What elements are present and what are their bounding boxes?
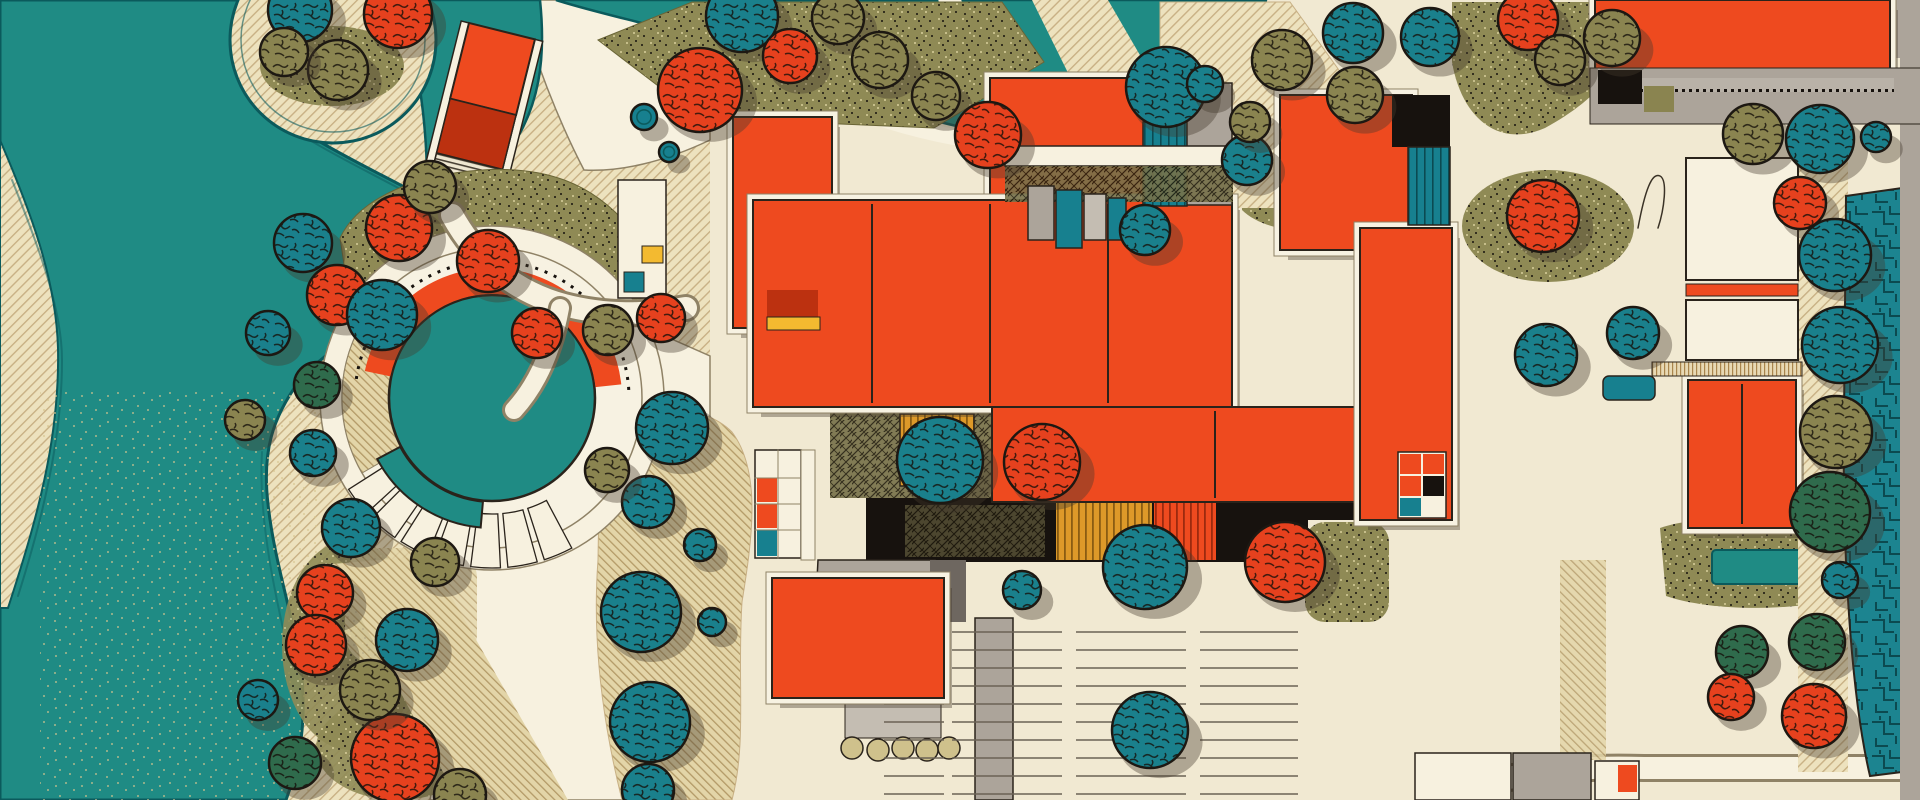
building-east-residence (1682, 374, 1804, 538)
tree-canopy-texture (1508, 181, 1578, 251)
tree-canopy-texture (1104, 526, 1186, 608)
building-east-court-b (1686, 300, 1798, 360)
tree-canopy-texture (323, 500, 379, 556)
building-detail (1603, 376, 1655, 400)
building-detail (642, 246, 663, 263)
tree-canopy-texture (637, 393, 707, 463)
building-detail (1513, 753, 1591, 800)
tree-canopy-texture (1790, 615, 1844, 669)
tree-canopy-texture (1783, 685, 1845, 747)
building-detail (1642, 78, 1894, 92)
tree-canopy-texture (611, 683, 689, 761)
tree-canopy-texture (956, 103, 1020, 167)
tree-canopy-texture (1113, 693, 1187, 767)
building-detail (767, 317, 820, 330)
courtyard-and-parking-shape (841, 737, 863, 759)
tree-canopy-texture (764, 30, 816, 82)
tree-canopy-texture (270, 738, 320, 788)
tree-canopy-texture (898, 418, 982, 502)
building-detail (1028, 186, 1054, 240)
tree-canopy-texture (1801, 397, 1871, 467)
tree-canopy-texture (1787, 106, 1853, 172)
tree-canopy-texture (1402, 9, 1458, 65)
courtyard-and-parking-shape (905, 505, 1045, 557)
building-detail (624, 272, 644, 292)
tree-canopy-texture (1724, 105, 1782, 163)
building-south-lodge (766, 572, 952, 708)
building-detail (757, 504, 777, 528)
building-detail (1400, 498, 1421, 516)
building-detail (1400, 454, 1421, 474)
tree-canopy-texture (1717, 627, 1767, 677)
tree-canopy-texture (853, 33, 907, 87)
tree-canopy-texture (1005, 425, 1079, 499)
tree-canopy-texture (298, 566, 352, 620)
building-detail (767, 290, 818, 317)
tree-canopy-texture (1516, 325, 1576, 385)
tree-canopy-texture (1803, 308, 1877, 382)
east-strip-shape (1900, 56, 1920, 800)
tree-canopy-texture (1791, 473, 1869, 551)
building-detail (1400, 476, 1421, 496)
tree-canopy-texture (1608, 308, 1658, 358)
site-plan-illustration (0, 0, 1920, 800)
tree-canopy-texture (1253, 31, 1311, 89)
tree-canopy-texture (1775, 178, 1825, 228)
building-detail (757, 530, 777, 556)
tree-canopy-texture (1324, 4, 1382, 62)
tree-canopy-texture (1800, 220, 1870, 290)
building-roof (772, 578, 944, 698)
water-shape (40, 390, 320, 800)
building-detail (1423, 454, 1444, 474)
tree-canopy-texture (287, 616, 345, 674)
building-detail (1618, 765, 1637, 792)
building-detail (1005, 146, 1233, 166)
east-strip-shape (1560, 560, 1606, 760)
building-roof (1686, 300, 1798, 360)
building-detail (1644, 86, 1674, 112)
tree-canopy-texture (348, 281, 416, 349)
building-detail (1686, 284, 1798, 296)
tree-canopy-texture (352, 715, 438, 800)
courtyard-and-parking-shape (975, 618, 1013, 800)
building-detail (1084, 194, 1106, 240)
tree-canopy-texture (1585, 11, 1639, 65)
site-plan-canvas (0, 0, 1920, 800)
tree-canopy-texture (602, 573, 680, 651)
tree-canopy-texture (458, 231, 518, 291)
map-render-root (0, 0, 1920, 800)
tree-canopy-texture (1328, 68, 1382, 122)
building-detail (1423, 476, 1444, 496)
building-detail (1415, 753, 1511, 800)
tree-canopy-texture (659, 49, 741, 131)
tree-canopy-texture (341, 661, 399, 719)
building-detail (757, 478, 777, 502)
building-detail (1392, 95, 1450, 147)
tree-canopy-texture (275, 215, 331, 271)
tree-canopy-texture (1246, 523, 1324, 601)
building-detail (801, 450, 815, 560)
tree-canopy-texture (377, 610, 437, 670)
building-detail (1408, 147, 1450, 225)
building-detail (1056, 190, 1082, 248)
tree-canopy-texture (405, 162, 455, 212)
building-detail (1652, 362, 1802, 376)
